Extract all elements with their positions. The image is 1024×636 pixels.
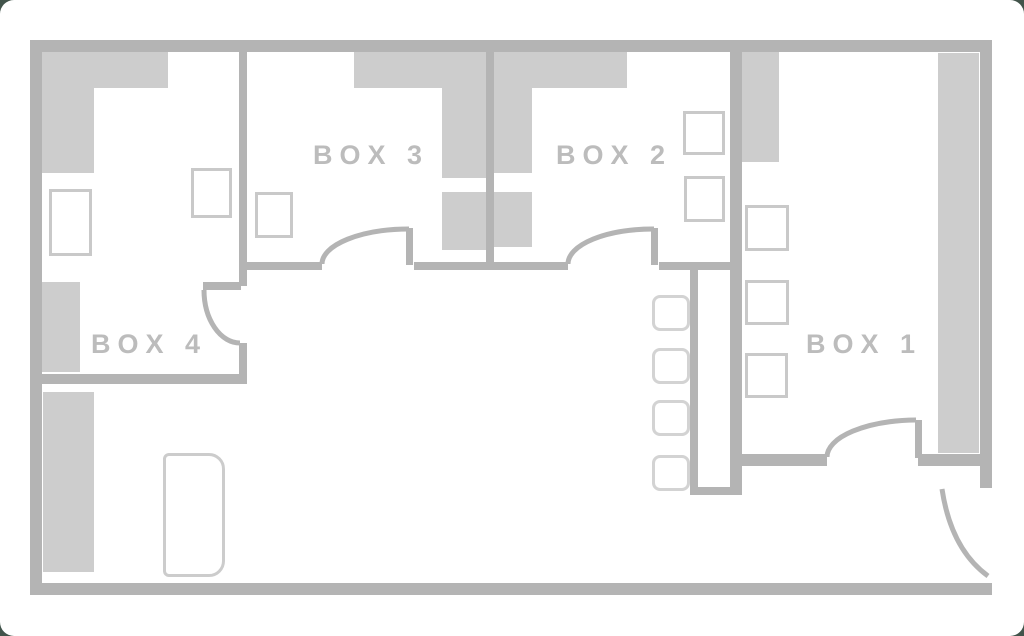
wall-box3-bottom-left: [247, 262, 322, 270]
wall-box3-box2: [486, 52, 494, 270]
counter-box4-lower: [42, 282, 80, 372]
counter-box4-left: [42, 52, 94, 173]
door-leaf-box4: [203, 282, 241, 290]
door-arc-box3: [322, 229, 409, 264]
room-label-box1: BOX 1: [806, 331, 922, 358]
room-label-box2: BOX 2: [556, 142, 672, 169]
fixture-box1-middle: [745, 280, 789, 325]
fixture-box2-upper: [683, 111, 725, 155]
room-label-box4: BOX 4: [91, 331, 207, 358]
door-leaf-box2: [651, 228, 658, 265]
wall-box2-box1: [730, 52, 742, 495]
wall-corridor-left: [690, 267, 698, 495]
counter-box1-right: [938, 53, 979, 453]
counter-box2-left: [494, 88, 532, 173]
outer-wall-right: [980, 40, 992, 488]
seat-4: [652, 455, 690, 491]
room-label-box3: BOX 3: [313, 142, 429, 169]
floor-plan: BOX 1 BOX 2 BOX 3 BOX 4: [0, 0, 1024, 636]
wall-box1-bottom-left: [742, 454, 827, 466]
door-arc-box4: [204, 290, 240, 343]
door-arc-box1: [827, 420, 916, 457]
seat-2: [652, 348, 690, 384]
counter-box3-right: [442, 88, 486, 178]
wall-box4-box3-upper: [239, 52, 247, 286]
outer-wall-bottom: [30, 583, 992, 595]
door-leaf-box1: [915, 420, 922, 458]
outer-wall-top: [30, 40, 992, 52]
wall-box1-bottom-right: [918, 454, 992, 466]
seat-1: [652, 295, 690, 331]
door-arc-box2: [568, 229, 654, 264]
cabinet-box2-left: [494, 192, 532, 247]
fixture-box1-upper: [745, 205, 789, 251]
fixture-box2-lower: [684, 176, 725, 222]
door-arc-entrance: [942, 489, 988, 576]
counter-box3-top: [354, 52, 486, 88]
cabinet-box3-right: [442, 192, 486, 250]
fixture-box1-lower: [745, 353, 788, 398]
seat-3: [652, 400, 690, 436]
outer-wall-left: [30, 40, 42, 595]
table-hall: [163, 453, 225, 577]
wall-box3-box2-bottom: [414, 262, 568, 270]
door-leaf-box3: [406, 228, 413, 265]
fixture-box3: [255, 192, 293, 238]
fixture-box4-left: [49, 189, 92, 256]
fixture-box4-right: [191, 168, 232, 218]
wall-corridor-bottom: [690, 487, 742, 495]
counter-box2-top: [494, 52, 627, 88]
wall-box4-bottom: [30, 374, 247, 384]
counter-hall-left: [43, 392, 94, 572]
counter-box1-left: [742, 52, 779, 162]
